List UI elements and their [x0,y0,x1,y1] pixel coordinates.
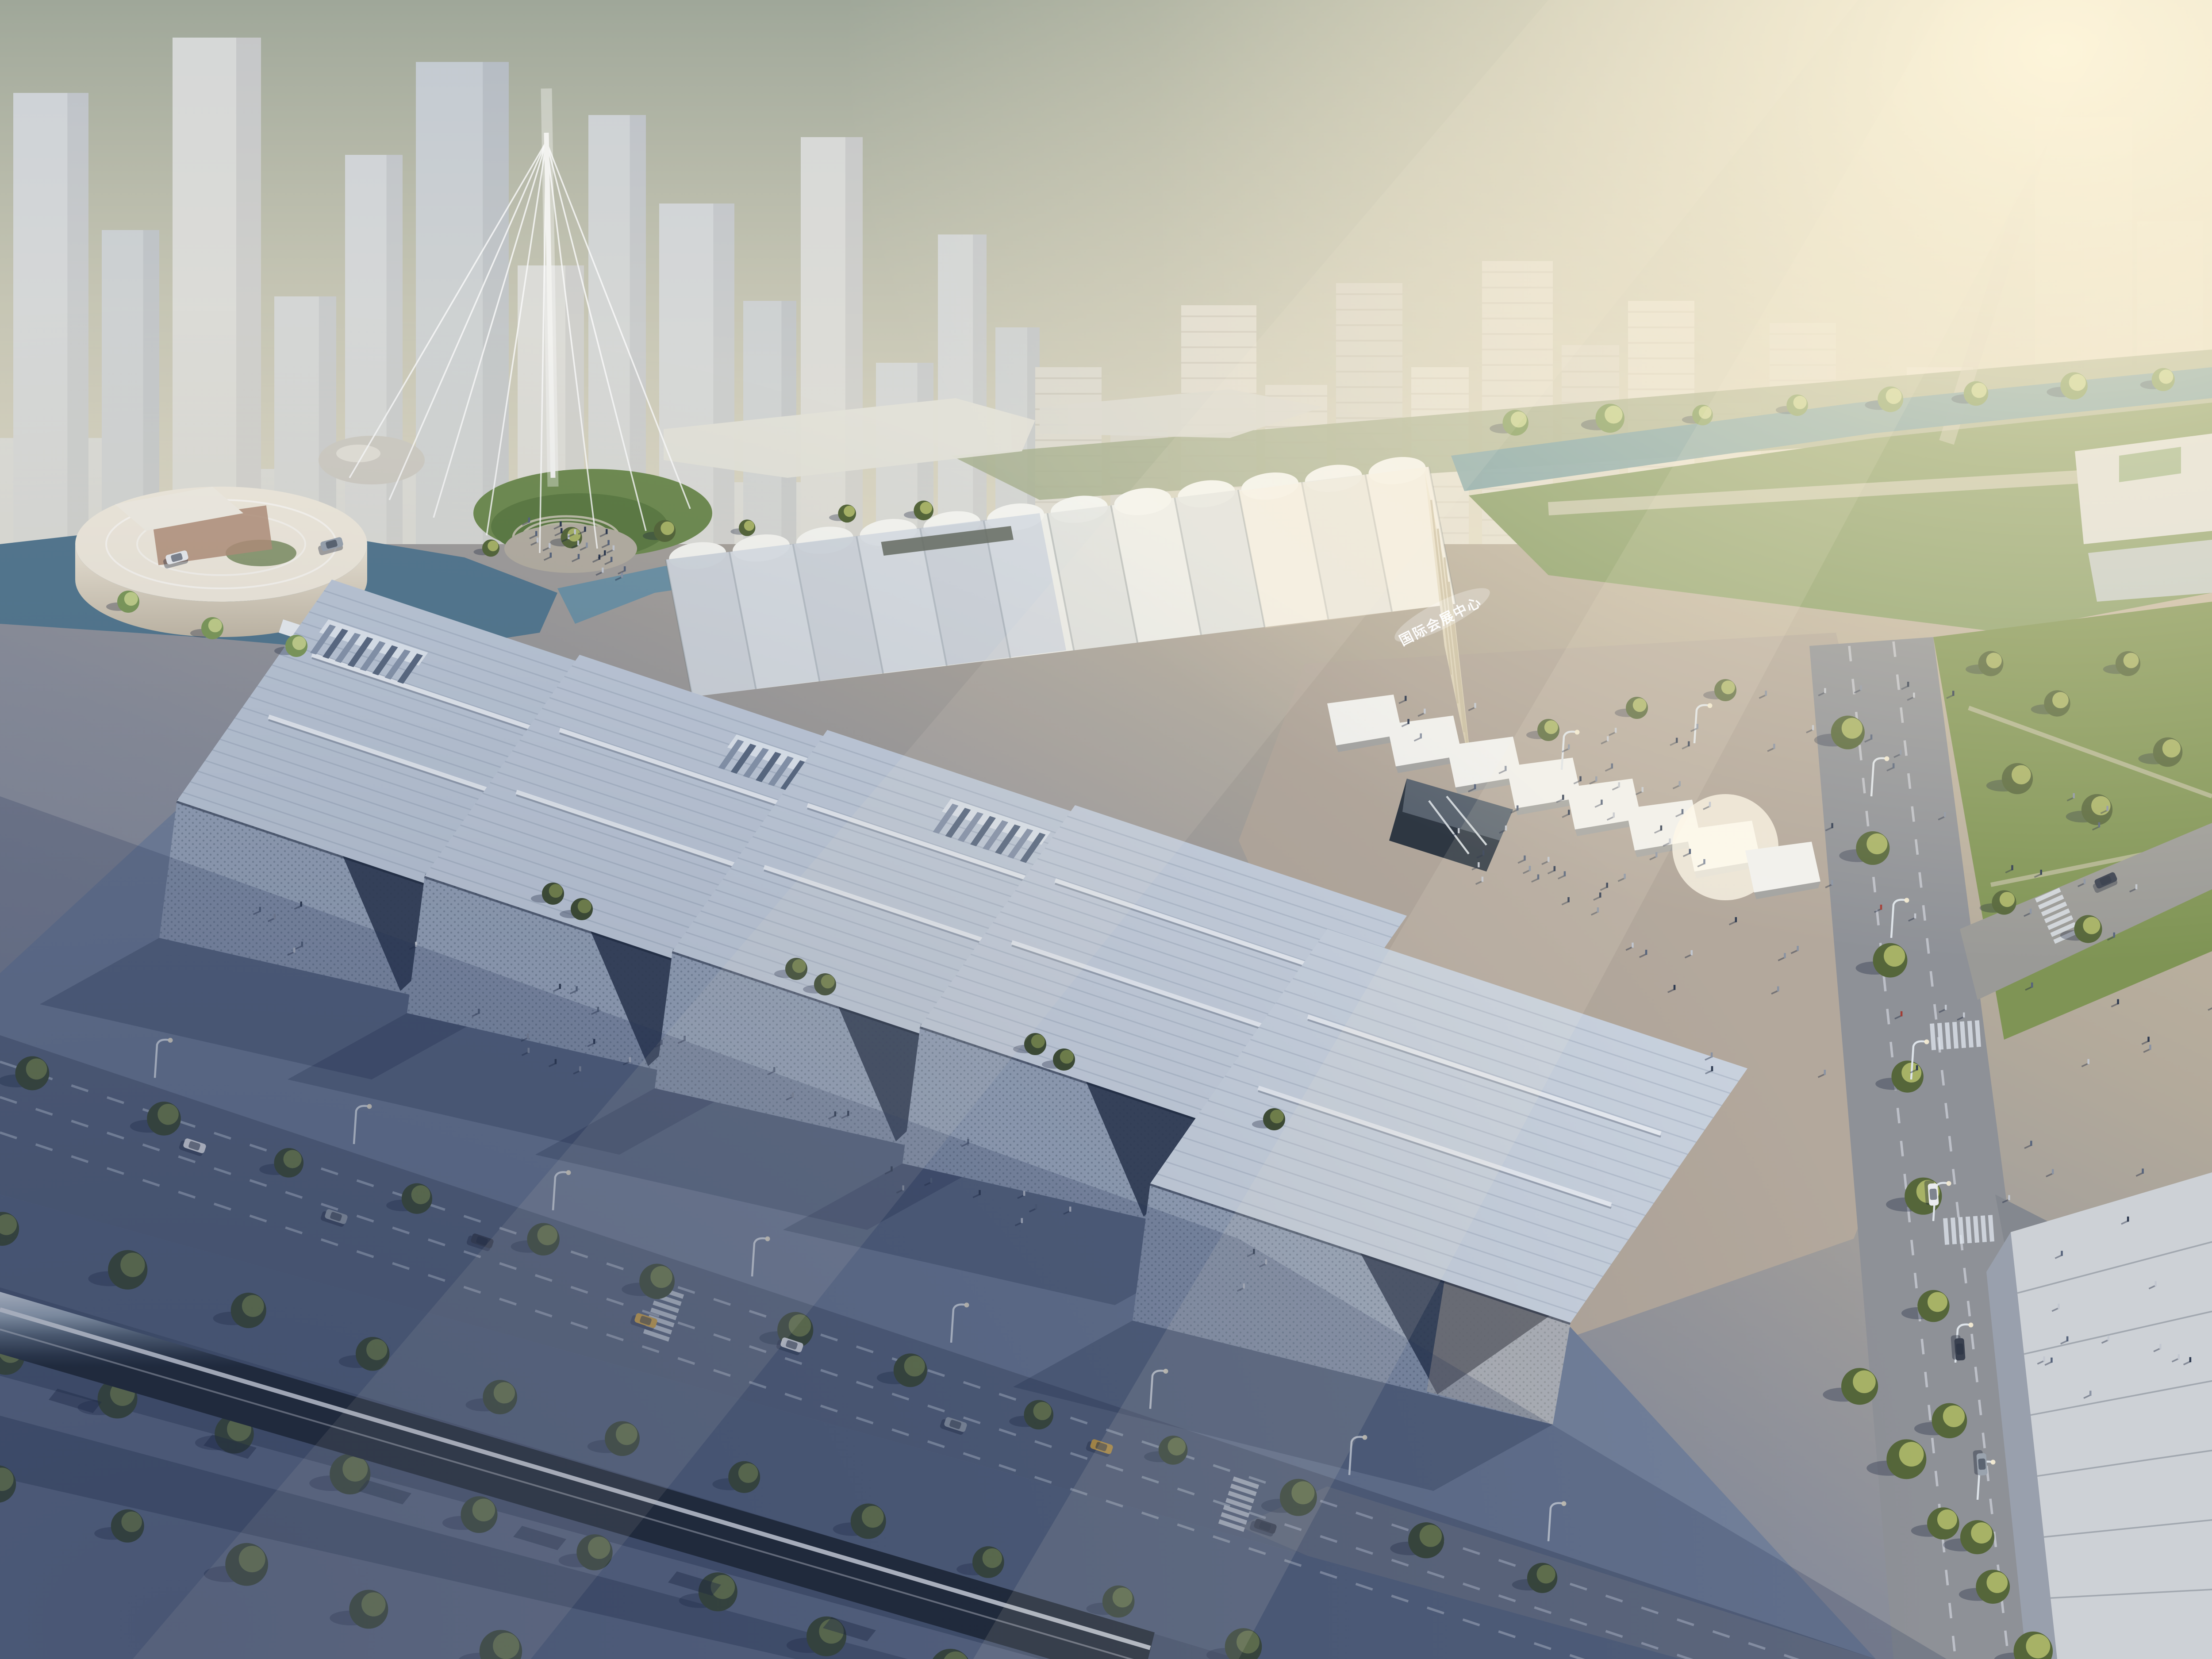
atmosphere-overlays [0,0,2212,1659]
aerial-rendering: 国际会展中心 [0,0,2212,1659]
cool-corner-tint [0,0,2212,1659]
rendering-canvas: 国际会展中心 [0,0,2212,1659]
